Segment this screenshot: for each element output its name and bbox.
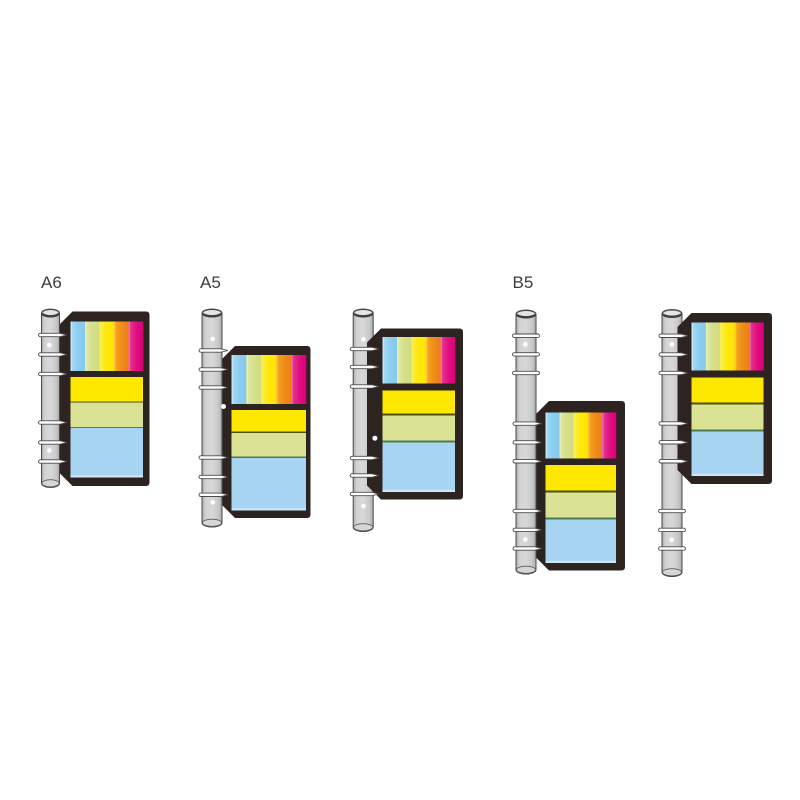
svg-text:A5: A5 xyxy=(200,273,221,292)
svg-text:A6: A6 xyxy=(41,273,62,292)
svg-text:B5: B5 xyxy=(513,273,534,292)
